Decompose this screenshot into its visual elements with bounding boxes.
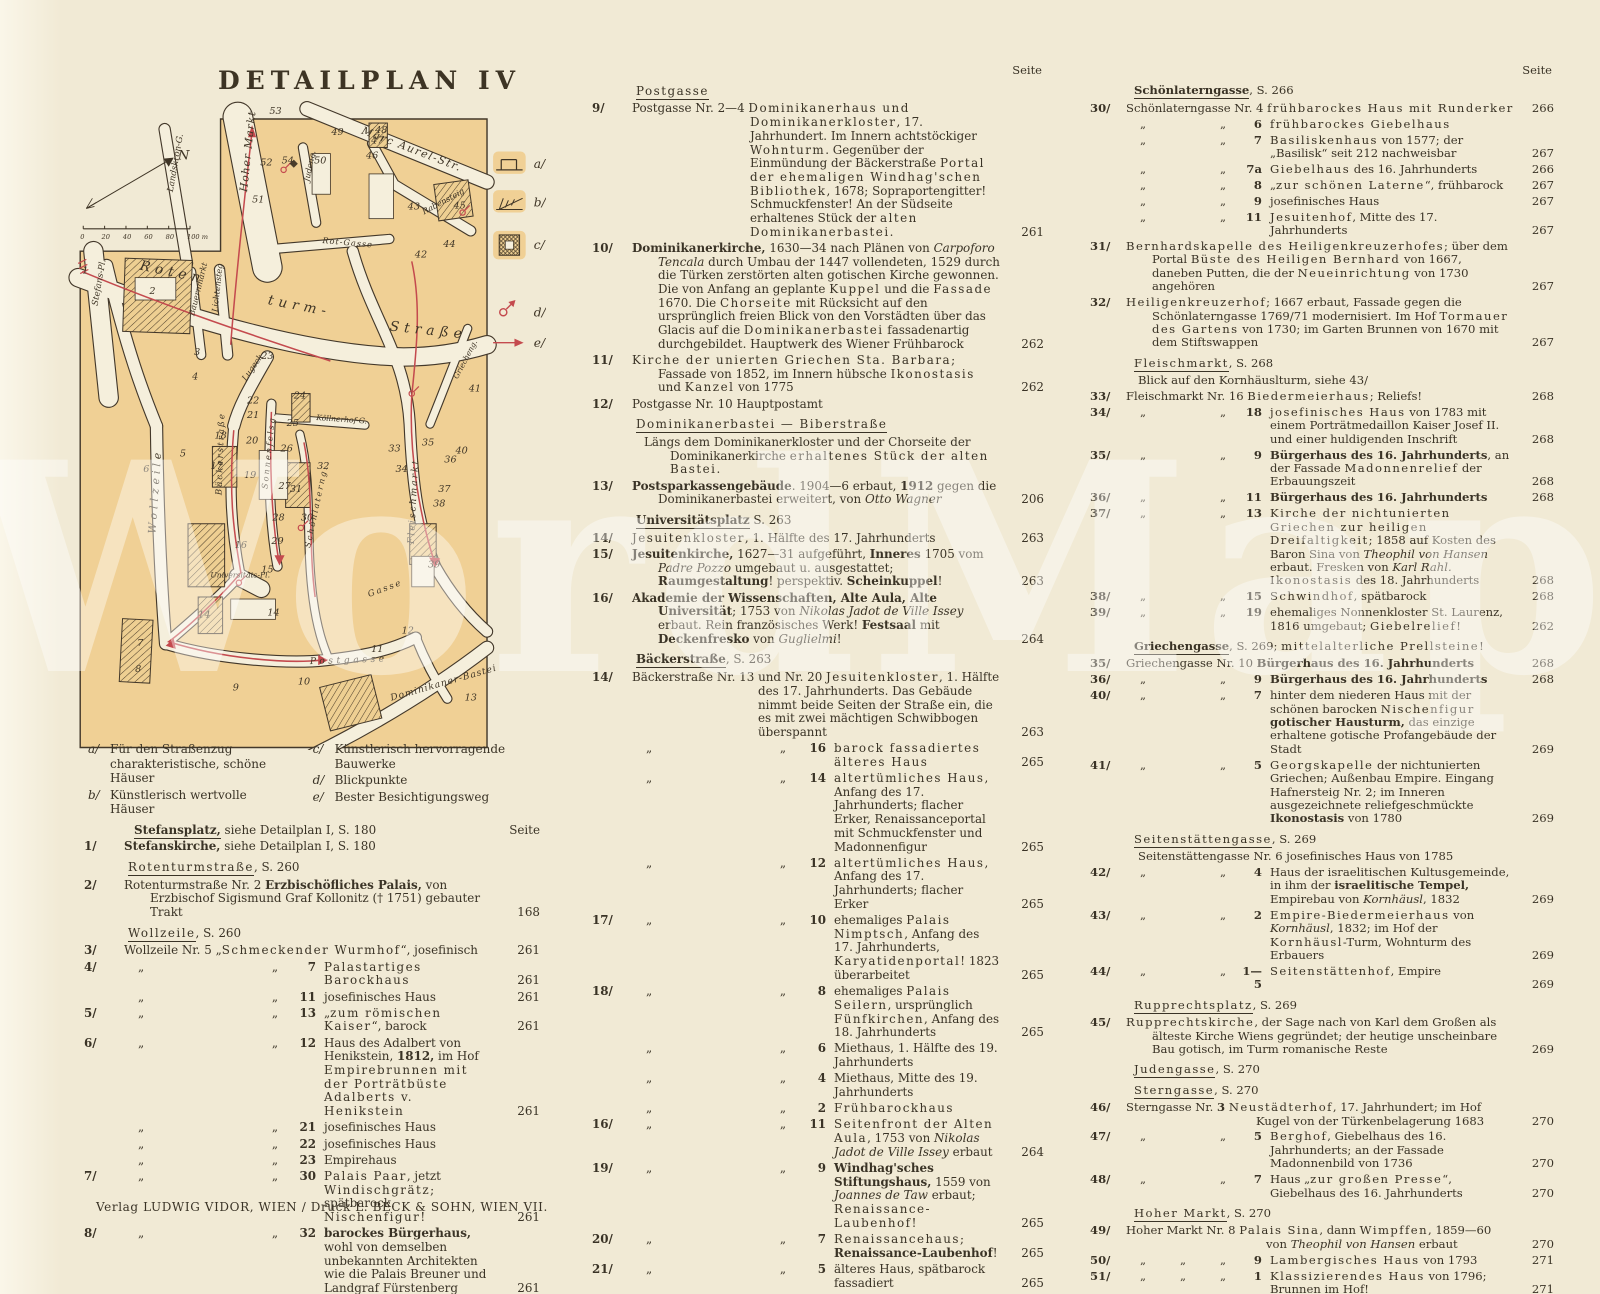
entry-text: Längs dem Dominikanerkloster und der Cho… <box>644 436 1000 477</box>
street-column: „„ <box>1126 118 1234 131</box>
building-number: 3 <box>194 347 200 358</box>
ditto-mark: „ <box>1220 1130 1226 1170</box>
street-column: „„ <box>632 1072 794 1099</box>
house-number: 1 <box>1240 1270 1262 1294</box>
scale-label: 20 <box>101 233 110 241</box>
scale-label: 80 <box>166 233 174 241</box>
entry-row: „„6Miethaus, 1. Hälfte des 19. Jahrhunde… <box>592 1042 1044 1069</box>
entry-row: Stefansplatz, siehe Detailplan I, S. 180… <box>84 824 540 838</box>
street-column: „„ <box>1126 449 1234 489</box>
ditto-mark: „ <box>646 1233 652 1260</box>
entry-number <box>84 824 118 838</box>
house-number: 8 <box>800 985 826 1040</box>
entry-text: Sterngasse, S. 270 <box>1134 1084 1514 1097</box>
building-number: 13 <box>465 693 477 704</box>
entry-number: 4/ <box>84 961 118 988</box>
entry-text: Empirehaus <box>324 1154 496 1168</box>
legend-key: b/ <box>88 788 110 817</box>
entry-number <box>1090 374 1120 387</box>
entry-number <box>592 772 626 854</box>
building-number: 47 <box>370 135 384 146</box>
street-column: „„ <box>124 1138 286 1152</box>
entry-row: 49/Hoher Markt Nr. 8 Palais Sina, dann W… <box>1090 1224 1554 1251</box>
entry-text: frühbarockes Giebelhaus <box>1270 118 1514 131</box>
section-heading: Rotenturmstraße, S. 260 <box>84 861 540 875</box>
page-number: 268 <box>1518 390 1554 403</box>
entry-text: Haus „zur großen Presse“, Giebelhaus des… <box>1270 1173 1514 1200</box>
entry-text: josefinisches Haus von 1783 mit einem Po… <box>1270 406 1514 446</box>
entry-number: 14/ <box>592 671 626 740</box>
section-heading: Postgasse <box>592 85 1044 99</box>
entry-row: 43/„„2Empire-Biedermeierhaus von Kornhäu… <box>1090 909 1554 963</box>
entry-text: Renaissancehaus; Renaissance-Laubenhof! <box>834 1233 1000 1260</box>
entry-text: Judengasse, S. 270 <box>1134 1063 1514 1076</box>
entry-number: 38/ <box>1090 590 1120 603</box>
house-number: 32 <box>292 1227 316 1294</box>
entry-text: Schwindhof, spätbarock <box>1270 590 1514 603</box>
ditto-mark: „ <box>780 914 786 983</box>
ditto-mark: „ <box>646 1118 652 1159</box>
map-legend-keys: a/b/c/d/e/ <box>534 157 546 350</box>
entry-number: 50/ <box>1090 1254 1120 1267</box>
page-number: 266 <box>1518 102 1554 115</box>
page-number: 263 <box>1004 726 1044 740</box>
entry-text: hinter dem niederen Haus mit der schönen… <box>1270 689 1514 756</box>
entry-row: 20/„„7Renaissancehaus; Renaissance-Laube… <box>592 1233 1044 1260</box>
ditto-mark: „ <box>1140 866 1146 906</box>
page-column-header: Seite <box>592 64 1044 78</box>
page-number: 265 <box>1004 1217 1044 1231</box>
ditto-mark: „ <box>1220 1270 1226 1294</box>
entry-number <box>84 1138 118 1152</box>
entry-text: josefinisches Haus <box>324 991 496 1005</box>
entry-text: Seitenfront der Alten Aula, 1753 von Nik… <box>834 1118 1000 1159</box>
house-number: 4 <box>800 1072 826 1099</box>
entry-number <box>1090 118 1120 131</box>
building-number: 17 <box>210 461 223 472</box>
entry-row: „„9josefinisches Haus267 <box>1090 195 1554 208</box>
entry-text: Fleischmarkt Nr. 16 Biedermeierhaus; Rel… <box>1126 390 1514 403</box>
legend-key: c/ <box>313 742 335 771</box>
entry-text: Rupprechtsplatz, S. 269 <box>1134 999 1514 1012</box>
index-column-right: SeiteSchönlaterngasse, S. 26630/Schönlat… <box>1090 64 1554 1294</box>
street-column: „„ <box>1126 606 1234 633</box>
entry-text: Griechengasse, S. 269; mittelalterliche … <box>1134 640 1514 653</box>
ditto-mark: „ <box>272 961 278 988</box>
entry-number: 35/ <box>1090 657 1120 670</box>
entry-text: Bürgerhaus des 16. Jahrhunderts <box>1270 673 1514 686</box>
entry-row: 42/„„4Haus der israelitischen Kultusgeme… <box>1090 866 1554 906</box>
entry-row: 46/Sterngasse Nr. 3 Neustädterhof, 17. J… <box>1090 1101 1554 1128</box>
entry-text: Bernhardskapelle des Heiligenkreuzerhofe… <box>1126 240 1514 294</box>
entry-text: Fleischmarkt, S. 268 <box>1134 357 1514 370</box>
entry-row: „„16barock fassadiertes älteres Haus265 <box>592 742 1044 769</box>
legend-text: Blickpunkte <box>335 773 408 788</box>
street-column: „„ <box>1126 759 1234 826</box>
page-number: 261 <box>500 1020 540 1034</box>
section-heading: Wollzeile, S. 260 <box>84 927 540 941</box>
entry-text: Berghof, Giebelhaus des 16. Jahrhunderts… <box>1270 1130 1514 1170</box>
legend-text: Künstlerisch wertvolle Häuser <box>110 788 295 817</box>
entry-number <box>1090 211 1120 238</box>
house-number: 1—5 <box>1240 965 1262 992</box>
ditto-mark: „ <box>272 1037 278 1119</box>
street-column: „„ <box>1126 1173 1234 1200</box>
entry-text: Windhag'sches Stiftungshaus, 1559 von Jo… <box>834 1162 1000 1231</box>
street-column: „„„ <box>1126 1254 1234 1267</box>
page-number: 268 <box>1518 433 1554 446</box>
building-number: 50 <box>314 156 326 167</box>
entry-text: älteres Haus, spätbarock fassadiert <box>834 1263 1000 1290</box>
legend-item: b/Künstlerisch wertvolle Häuser <box>88 788 295 817</box>
ditto-mark: „ <box>138 1170 144 1225</box>
entry-row: 8/„„32barockes Bürgerhaus, wohl von dems… <box>84 1227 540 1294</box>
entry-number: 48/ <box>1090 1173 1120 1200</box>
entry-row: 33/Fleischmarkt Nr. 16 Biedermeierhaus; … <box>1090 390 1554 403</box>
entry-number <box>592 1042 626 1069</box>
entry-row: „„22josefinisches Haus <box>84 1138 540 1152</box>
page-number: 261 <box>500 944 540 958</box>
building-number: 33 <box>388 444 400 455</box>
entry-number <box>1090 163 1120 176</box>
entry-number: 18/ <box>592 985 626 1040</box>
house-number: 7 <box>1240 134 1262 161</box>
building-number: 38 <box>433 498 445 509</box>
building-number: 25 <box>286 418 299 429</box>
entry-text: Bäckerstraße Nr. 13 und Nr. 20 Jesuitenk… <box>632 671 1000 740</box>
ditto-mark: „ <box>646 742 652 769</box>
entry-row: 3/Wollzeile Nr. 5 „Schmeckender Wurmhof“… <box>84 944 540 958</box>
page-number: 269 <box>1518 893 1554 906</box>
entry-text: Haus des Adalbert von Henikstein, 1812, … <box>324 1037 496 1119</box>
entry-text: Palastartiges Barockhaus <box>324 961 496 988</box>
entry-text: Jesuitenhof, Mitte des 17. Jahrhunderts <box>1270 211 1514 238</box>
entry-text: Basiliskenhaus von 1577; der „Basilisk“ … <box>1270 134 1514 161</box>
entry-text: Bürgerhaus des 16. Jahrhunderts, an der … <box>1270 449 1514 489</box>
entry-row: 11/Kirche der unierten Griechen Sta. Bar… <box>592 354 1044 395</box>
ditto-mark: „ <box>1140 590 1146 603</box>
building-number: 41 <box>468 384 481 395</box>
ditto-mark: „ <box>1180 1270 1186 1294</box>
ditto-mark: „ <box>1140 507 1146 587</box>
entry-text: Hoher Markt, S. 270 <box>1134 1207 1514 1220</box>
entry-number: 16/ <box>592 1118 626 1159</box>
entry-row: 35/„„9Bürgerhaus des 16. Jahrhunderts, a… <box>1090 449 1554 489</box>
ditto-mark: „ <box>272 1154 278 1168</box>
entry-text: ehemaliges Nonnenkloster St. Laurenz, 18… <box>1270 606 1514 633</box>
entry-number: 13/ <box>592 480 626 507</box>
street-column: „„ <box>1126 507 1234 587</box>
entry-row: „„4Miethaus, Mitte des 19. Jahrhunderts <box>592 1072 1044 1099</box>
entry-text: Bäckerstraße, S. 263 <box>636 653 1000 667</box>
street-column: „„ <box>1126 673 1234 686</box>
legend-text: Für den Straßenzug charakteristische, sc… <box>110 742 295 786</box>
entry-number: 17/ <box>592 914 626 983</box>
entry-number: 49/ <box>1090 1224 1120 1251</box>
entry-number: 9/ <box>592 102 626 239</box>
entry-row: „„11Jesuitenhof, Mitte des 17. Jahrhunde… <box>1090 211 1554 238</box>
ditto-mark: „ <box>1140 195 1146 208</box>
section-heading: Schönlaterngasse, S. 266 <box>1090 84 1554 97</box>
entry-text: ehemaliges Palais Seilern, ursprünglich … <box>834 985 1000 1040</box>
house-number: 7 <box>1240 689 1262 756</box>
ditto-mark: „ <box>1220 689 1226 756</box>
street-column: „„ <box>632 1162 794 1231</box>
page-number: 264 <box>1004 1146 1044 1160</box>
page-number: 263 <box>1004 575 1044 589</box>
entry-text: Kirche der nichtunierten Griechen zur he… <box>1270 507 1514 587</box>
entry-number <box>84 991 118 1005</box>
building-number: 10 <box>298 676 310 687</box>
entry-text: Palais Paar, jetzt Windischgrätz; spätba… <box>324 1170 496 1225</box>
entry-row: 32/Heiligenkreuzerhof; 1667 erbaut, Fass… <box>1090 296 1554 350</box>
page-number: 267 <box>1518 195 1554 208</box>
ditto-mark: „ <box>780 742 786 769</box>
entry-row: 37/„„13Kirche der nichtunierten Griechen… <box>1090 507 1554 587</box>
entry-number <box>1090 195 1120 208</box>
house-number: 23 <box>292 1154 316 1168</box>
entry-number: 35/ <box>1090 449 1120 489</box>
building-number: 19 <box>244 470 256 481</box>
ditto-mark: „ <box>1140 606 1146 633</box>
ditto-mark: „ <box>1220 759 1226 826</box>
ditto-mark: „ <box>780 1102 786 1116</box>
house-number: 7a <box>1240 163 1262 176</box>
ditto-mark: „ <box>1140 406 1146 446</box>
entry-text: Dominikanerkirche, 1630—34 nach Plänen v… <box>632 242 1000 352</box>
entry-number: 47/ <box>1090 1130 1120 1170</box>
page-number: 262 <box>1518 620 1554 633</box>
street-column: „„ <box>632 772 794 854</box>
page-number: 269 <box>1518 743 1554 756</box>
entry-number: 3/ <box>84 944 118 958</box>
ditto-mark: „ <box>138 1138 144 1152</box>
entry-text: Kirche der unierten Griechen Sta. Barbar… <box>632 354 1000 395</box>
ditto-mark: „ <box>138 1227 144 1294</box>
entry-text: „zum römischen Kaiser“, barock <box>324 1007 496 1034</box>
entry-text: Seitenstättengasse, S. 269 <box>1134 833 1514 846</box>
house-number: 4 <box>1240 866 1262 906</box>
building-number: 53 <box>269 106 281 117</box>
street-column: „„ <box>124 1037 286 1119</box>
entry-number <box>1090 179 1120 192</box>
entry-number: 20/ <box>592 1233 626 1260</box>
legend-key-label: b/ <box>534 195 546 209</box>
entry-number: 36/ <box>1090 673 1120 686</box>
ditto-mark: „ <box>646 985 652 1040</box>
ditto-mark: „ <box>646 1162 652 1231</box>
entry-text: Empire-Biedermeierhaus von Kornhäusl, 18… <box>1270 909 1514 963</box>
house-number: 22 <box>292 1138 316 1152</box>
entry-row: 36/„„9Bürgerhaus des 16. Jahrhunderts268 <box>1090 673 1554 686</box>
section-heading: Seitenstättengasse, S. 269 <box>1090 833 1554 846</box>
street-column: „„ <box>1126 965 1234 992</box>
entry-text: Bürgerhaus des 16. Jahrhunderts <box>1270 491 1514 504</box>
entry-row: 16/„„11Seitenfront der Alten Aula, 1753 … <box>592 1118 1044 1159</box>
entry-number: 39/ <box>1090 606 1120 633</box>
ditto-mark: „ <box>1220 449 1226 489</box>
page-number: 266 <box>1518 163 1554 176</box>
building-number: 48 <box>374 125 387 136</box>
section-heading: Rupprechtsplatz, S. 269 <box>1090 999 1554 1012</box>
entry-text: Seitenstättengasse Nr. 6 josefinisches H… <box>1138 850 1514 863</box>
page-number: 270 <box>1518 1157 1554 1170</box>
building-number: 12 <box>402 626 414 637</box>
entry-text: Stefansplatz, siehe Detailplan I, S. 180 <box>134 824 496 838</box>
legend-key-label: e/ <box>534 336 546 350</box>
building-number: 42 <box>414 249 427 260</box>
entry-text: Hoher Markt Nr. 8 Palais Sina, dann Wimp… <box>1126 1224 1514 1251</box>
legend-item: c/Künstlerisch hervorragende Bauwerke <box>313 742 540 771</box>
section-heading: Sterngasse, S. 270 <box>1090 1084 1554 1097</box>
entry-text: Postgasse Nr. 2—4 Dominikanerhaus und Do… <box>632 102 1000 239</box>
entry-row: „„11josefinisches Haus261 <box>84 991 540 1005</box>
entry-row: 2/Rotenturmstraße Nr. 2 Erzbischöfliches… <box>84 879 540 920</box>
street-column: „„ <box>1126 689 1234 756</box>
entry-number: 6/ <box>84 1037 118 1119</box>
index-column-middle: SeitePostgasse9/Postgasse Nr. 2—4 Domini… <box>592 64 1044 1294</box>
page-number: 268 <box>1518 491 1554 504</box>
street-column: „„ <box>124 1007 286 1034</box>
house-number: 14 <box>800 772 826 854</box>
ditto-mark: „ <box>1140 673 1146 686</box>
page-number: 271 <box>1518 1254 1554 1267</box>
entry-row: 16/Akademie der Wissenschaften, Alte Aul… <box>592 592 1044 647</box>
page-number: 261 <box>500 991 540 1005</box>
street-column: „„ <box>632 985 794 1040</box>
entry-text: Griechengasse Nr. 10 Bürgerhaus des 16. … <box>1126 657 1514 670</box>
entry-number: 10/ <box>592 242 626 352</box>
ditto-mark: „ <box>1140 163 1146 176</box>
entry-row: 10/Dominikanerkirche, 1630—34 nach Pläne… <box>592 242 1044 352</box>
ditto-mark: „ <box>1220 118 1226 131</box>
entry-row: 15/Jesuitenkirche, 1627—31 aufgeführt, I… <box>592 548 1044 589</box>
ditto-mark: „ <box>1140 909 1146 963</box>
entry-row: „„21josefinisches Haus <box>84 1121 540 1135</box>
entry-text: ehemaliges Palais Nimptsch, Anfang des 1… <box>834 914 1000 983</box>
building-number: 44 <box>442 239 455 250</box>
entry-row: 35/Griechengasse Nr. 10 Bürgerhaus des 1… <box>1090 657 1554 670</box>
entry-row: 34/„„18josefinisches Haus von 1783 mit e… <box>1090 406 1554 446</box>
scale-label: 0 <box>80 233 84 241</box>
ditto-mark: „ <box>1220 507 1226 587</box>
entry-number: 43/ <box>1090 909 1120 963</box>
entry-number: 14/ <box>592 532 626 546</box>
building-number: 8 <box>135 664 141 675</box>
street-column: „„ <box>632 1233 794 1260</box>
entry-number <box>84 1154 118 1168</box>
ditto-mark: „ <box>272 1121 278 1135</box>
house-number: 7 <box>292 961 316 988</box>
entry-row: 51/„„„1Klassizierendes Haus von 1796; Br… <box>1090 1270 1554 1294</box>
entry-number: 7/ <box>84 1170 118 1225</box>
ditto-mark: „ <box>1140 1254 1146 1267</box>
entry-number: 16/ <box>592 592 626 647</box>
building-number: 4 <box>191 371 198 382</box>
ditto-mark: „ <box>1220 866 1226 906</box>
city-map: N 020406080100 m a/b/c/d/e/ <box>68 88 546 754</box>
entry-text: Stefanskirche, siehe Detailplan I, S. 18… <box>124 840 496 854</box>
street-column: „„ <box>1126 195 1234 208</box>
ditto-mark: „ <box>138 1037 144 1119</box>
house-number: 10 <box>800 914 826 983</box>
entry-text: Blick auf den Kornhäuslturm, siehe 43/ <box>1138 374 1514 387</box>
building-number: 26 <box>280 444 293 455</box>
street-column: „„ <box>1126 1130 1234 1170</box>
page-number: 267 <box>1518 147 1554 160</box>
entry-row: 48/„„7Haus „zur großen Presse“, Giebelha… <box>1090 1173 1554 1200</box>
ditto-mark: „ <box>1220 590 1226 603</box>
building-number: 20 <box>245 435 258 446</box>
house-number: 12 <box>800 857 826 912</box>
street-column: „„ <box>1126 909 1234 963</box>
ditto-mark: „ <box>1140 689 1146 756</box>
page-column-header: Seite <box>1090 64 1554 77</box>
building-number: 46 <box>365 151 378 162</box>
legend-key-label: d/ <box>534 305 546 319</box>
street-column: „„ <box>124 961 286 988</box>
page-number: 265 <box>1004 756 1044 770</box>
entry-text: Sterngasse Nr. 3 Neustädterhof, 17. Jahr… <box>1126 1101 1514 1128</box>
house-number: 18 <box>1240 406 1262 446</box>
building-number: 40 <box>454 446 467 457</box>
page-number: 267 <box>1518 280 1554 293</box>
building-number: 32 <box>317 461 329 472</box>
page-number: 270 <box>1518 1187 1554 1200</box>
page-number: 263 <box>1004 532 1044 546</box>
ditto-mark: „ <box>1140 134 1146 161</box>
legend-item: d/Blickpunkte <box>313 773 540 788</box>
entry-number: 8/ <box>84 1227 118 1294</box>
entry-number <box>592 1102 626 1116</box>
entry-row: 4/„„7Palastartiges Barockhaus261 <box>84 961 540 988</box>
ditto-mark: „ <box>138 991 144 1005</box>
entry-text: Schönlaterngasse, S. 266 <box>1134 84 1514 97</box>
ditto-mark: „ <box>646 772 652 854</box>
legend-key-label: a/ <box>534 157 546 171</box>
entry-number: 12/ <box>592 398 626 412</box>
legend-key: a/ <box>88 742 110 786</box>
page-number: 269 <box>1518 812 1554 825</box>
ditto-mark: „ <box>1220 406 1226 446</box>
ditto-mark: „ <box>646 1102 652 1116</box>
building-number: 54 <box>282 156 294 167</box>
entry-text: Giebelhaus des 16. Jahrhunderts <box>1270 163 1514 176</box>
street-column: „„ <box>1126 163 1234 176</box>
street-column: „„ <box>124 1154 286 1168</box>
entry-text: Rotenturmstraße, S. 260 <box>128 861 496 875</box>
entry-text: barockes Bürgerhaus, wohl von demselben … <box>324 1227 496 1294</box>
building-number: 21 <box>246 410 259 421</box>
building-number: 23 <box>260 351 273 362</box>
ditto-mark: „ <box>780 1233 786 1260</box>
entry-number: 33/ <box>1090 390 1120 403</box>
entry-row: „„12altertümliches Haus, Anfang des 17. … <box>592 857 1044 912</box>
building-number: 31 <box>290 484 302 495</box>
street-column: „„ <box>632 857 794 912</box>
ditto-mark: „ <box>1220 606 1226 633</box>
entry-row: 1/Stefanskirche, siehe Detailplan I, S. … <box>84 840 540 854</box>
ditto-mark: „ <box>1220 134 1226 161</box>
building-number: 30 <box>301 513 313 524</box>
entry-row: 14/Bäckerstraße Nr. 13 und Nr. 20 Jesuit… <box>592 671 1044 740</box>
entry-number <box>592 742 626 769</box>
street-column: „„ <box>1126 866 1234 906</box>
entry-row: 39/„„19ehemaliges Nonnenkloster St. Laur… <box>1090 606 1554 633</box>
section-heading: Dominikanerbastei — Biberstraße <box>592 418 1044 432</box>
building-number: 49 <box>330 127 343 138</box>
entry-row: 45/Rupprechtskirche, der Sage nach von K… <box>1090 1016 1554 1056</box>
